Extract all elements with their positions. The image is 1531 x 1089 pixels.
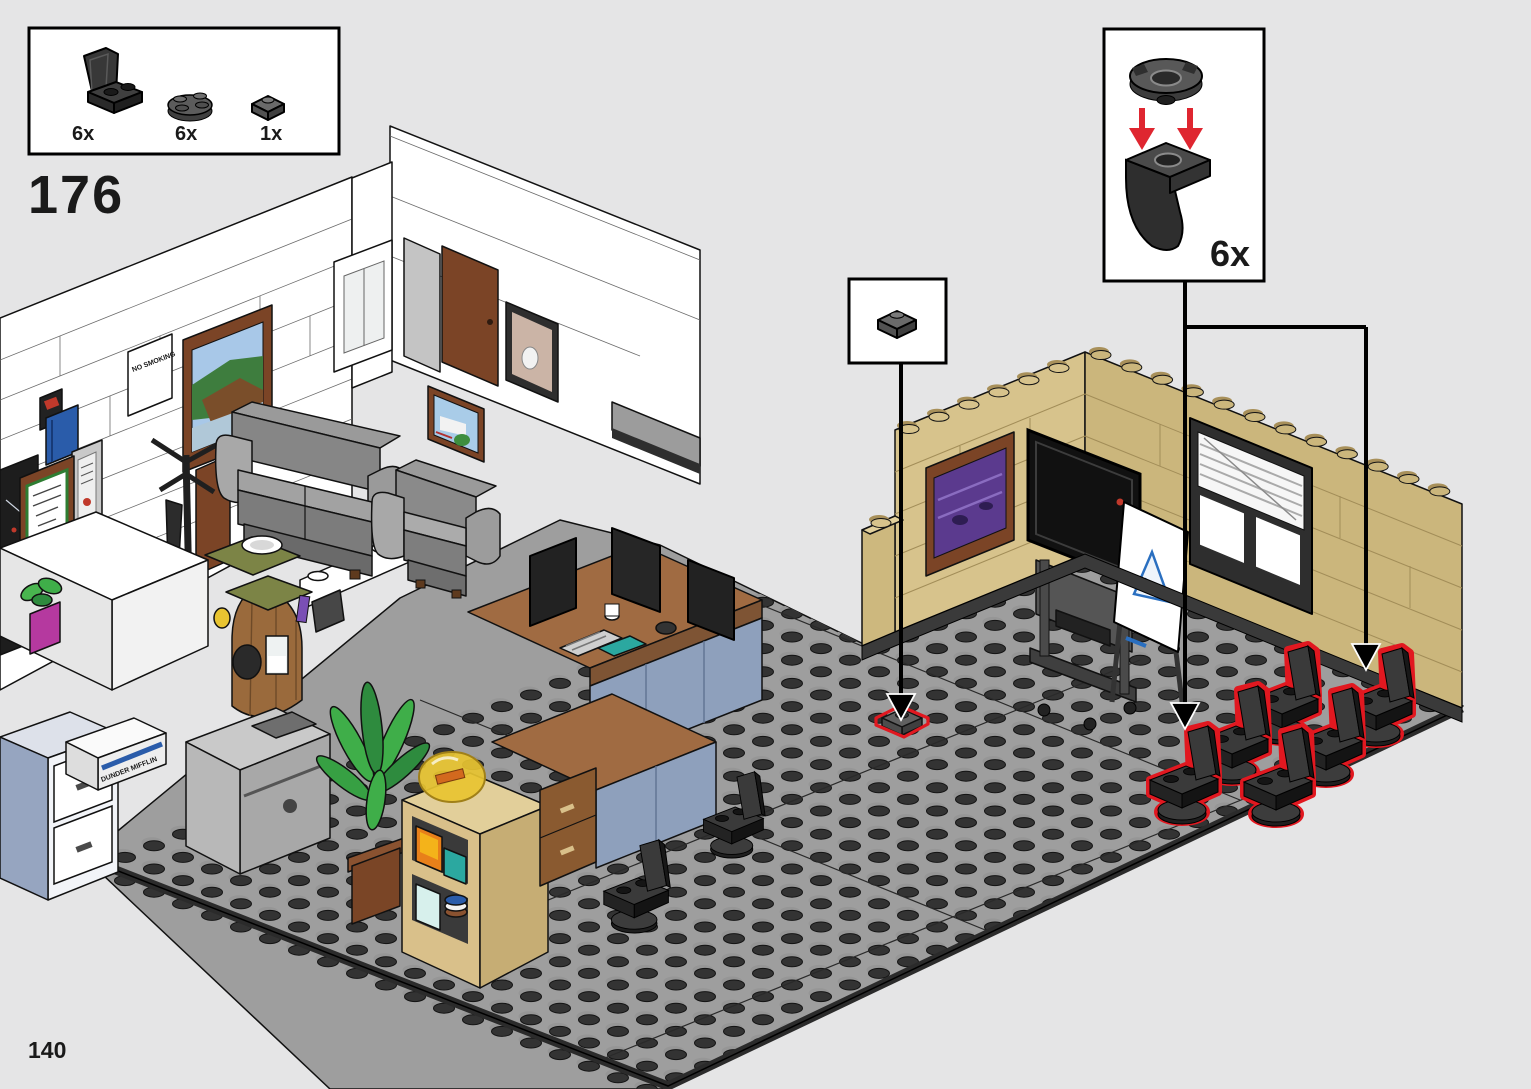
instruction-page: NO SMOKING: [0, 0, 1531, 1089]
desk-phone: [656, 622, 676, 634]
part-count-round-plate: 6x: [175, 123, 197, 145]
doorway-opening: [404, 238, 440, 372]
placement-callout-box: [849, 279, 946, 363]
subassembly-count: 6x: [1210, 233, 1250, 274]
part-count-seat: 6x: [72, 123, 94, 145]
step-number: 176: [28, 165, 124, 225]
lego-round-plate-2x2-icon: [168, 93, 212, 121]
coffee-pot: [233, 645, 261, 679]
part-count-jumper: 1x: [260, 123, 282, 145]
brown-door: [442, 246, 498, 386]
parts-box: 6x 6x 1x: [29, 28, 339, 154]
page-number: 140: [28, 1037, 66, 1063]
tan-wall-end: [862, 516, 895, 646]
subassembly-callout-box: 6x: [1104, 29, 1264, 281]
lego-room-illustration: NO SMOKING: [0, 0, 1531, 1089]
